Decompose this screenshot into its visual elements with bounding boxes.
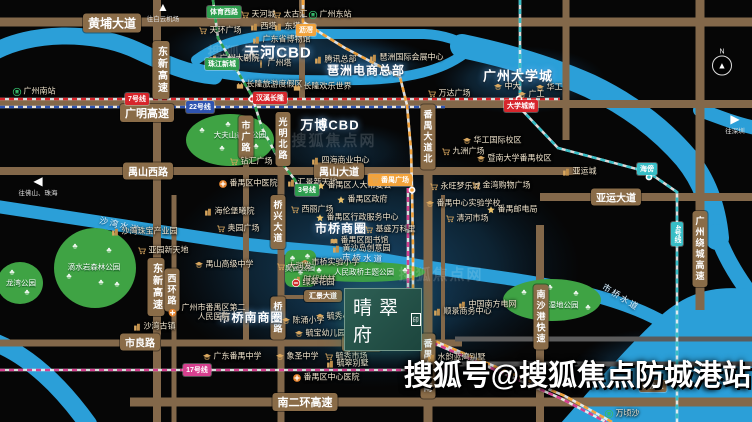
cart-icon <box>273 11 282 20</box>
tree-icon: ♣ <box>219 144 224 153</box>
arrow-label: 往白云机场 <box>147 13 180 23</box>
poi-cart: 太古汇 <box>273 11 308 20</box>
road-label: 禺山西路 <box>123 163 173 180</box>
poi-school: 象圣中学 <box>276 353 319 362</box>
poi-castle: 长隆欢乐世界 <box>293 83 352 92</box>
star-icon <box>337 196 346 205</box>
park-label: 龙湾公园 <box>6 278 36 289</box>
building-icon <box>250 23 259 32</box>
metro-station-tag: 3号线 <box>295 184 319 196</box>
tag-label: 22号线 <box>189 102 211 112</box>
compass-letter: N <box>719 49 724 56</box>
cart-icon <box>428 90 437 99</box>
road-label: 桥兴大道 <box>271 195 286 249</box>
tag-label: 3号线 <box>298 185 316 195</box>
poi-label: 绿翠花园 <box>303 279 335 288</box>
poi-cart: 金湾购物广场 <box>472 182 531 191</box>
school-icon <box>276 353 285 362</box>
poi-label: 万达广场 <box>439 90 471 99</box>
metro-station-tag: 22号线 <box>186 101 214 113</box>
location-map: ♣♣♣♣♣大夫山森林公园♣♣♣♣♣滴水岩森林公园♣♣龙湾公园♣♣♣奥园公园♣♣人… <box>0 0 752 422</box>
hospital-icon <box>293 374 302 383</box>
poi-label: 四海商业中心 <box>322 157 370 166</box>
poi-label: 广州南站 <box>24 88 56 97</box>
arrow-up-icon: ▲ <box>157 1 169 13</box>
castle-icon <box>293 83 302 92</box>
cart-icon <box>277 263 286 272</box>
watermark: 搜狐焦点网 <box>207 42 292 63</box>
poi-building: 亚运城 <box>562 168 597 177</box>
cart-icon <box>199 27 208 36</box>
building-icon <box>332 245 341 254</box>
poi-star: 番禺区政府 <box>337 196 388 205</box>
rail-icon <box>13 88 22 97</box>
poi-label: 广州市番禺区第二人民医院 <box>179 304 248 322</box>
metro-station-tag: 4号线 <box>671 222 683 246</box>
metro-station-tag: 17号线 <box>183 364 211 376</box>
tree-icon: ♣ <box>24 288 29 297</box>
arrow-label: 往佛山、珠海 <box>19 187 58 197</box>
building-icon <box>204 208 213 217</box>
poi-label: 西丽广场 <box>302 206 334 215</box>
school-icon <box>195 261 204 270</box>
river-label: 市桥水道 <box>600 281 642 313</box>
poi-cart: 钻汇广场 <box>230 158 273 167</box>
poi-label: 沙湾古镇 <box>144 323 176 332</box>
cart-icon <box>472 182 481 191</box>
building-icon <box>369 54 378 63</box>
watermark-sohu-big: 搜狐号@搜狐焦点防城港站 <box>404 352 751 394</box>
direction-arrow-left: ◀往佛山、珠海 <box>19 175 58 197</box>
poi-cart: 亚园新天地 <box>138 247 189 256</box>
direction-arrow-right: ▶往深圳 <box>725 113 745 135</box>
poi-school: 禺山高级中学 <box>195 261 254 270</box>
poi-label: 番禺区中医院 <box>230 180 278 189</box>
hospital-icon <box>219 180 228 189</box>
road-label: 汇景大道 <box>304 290 342 302</box>
tag-label: 7号线 <box>128 94 146 104</box>
road-label: 南沙港快速 <box>534 285 549 350</box>
tree-icon: ♣ <box>573 289 578 298</box>
school-icon <box>316 313 325 322</box>
road-label: 光明北路 <box>276 112 291 166</box>
tree-icon: ♣ <box>521 288 526 297</box>
poi-cart: 万达广场 <box>428 90 471 99</box>
poi-building: 黄沙岛创意园 <box>332 245 391 254</box>
road-label: 黄埔大道 <box>83 14 141 33</box>
poi-building: 沙湾珠宝产业园 <box>111 228 178 237</box>
poi-school: 暨南大学番禺校区 <box>477 155 552 164</box>
school-icon <box>536 84 545 93</box>
poi-school: 毓宝幼儿园 <box>295 330 346 339</box>
poi-label: 顺景商务中心 <box>444 308 492 317</box>
project-name: 晴翠府 <box>353 293 413 347</box>
poi-label: 番禺区政府 <box>348 196 388 205</box>
cart-icon <box>442 148 451 157</box>
school-icon <box>282 317 291 326</box>
poi-label: 华工国际校区 <box>474 137 522 146</box>
poi-label: 金湾购物广场 <box>483 182 531 191</box>
poi-building: 西塔 <box>250 23 277 32</box>
cart-icon <box>446 215 455 224</box>
cart-icon <box>291 206 300 215</box>
road-label: 广明高速 <box>120 104 174 122</box>
poi-label: 腾讯总部 <box>325 56 357 65</box>
building-icon <box>274 23 283 32</box>
poi-rail: 广州南站 <box>13 88 56 97</box>
compass-icon: N▲ <box>712 49 732 76</box>
tree-icon: ♣ <box>199 126 204 135</box>
road-label: 番禺大道北 <box>421 105 436 170</box>
project-seal-icon: 印 <box>411 313 421 326</box>
school-icon <box>203 353 212 362</box>
poi-label: 海伦堡曦院 <box>215 208 255 217</box>
road-label: 广州绕城高速 <box>693 211 708 287</box>
poi-label: 亚园新天地 <box>149 247 189 256</box>
poi-label: 毓翠别墅 <box>337 360 369 369</box>
poi-cart: 清河市场 <box>446 215 489 224</box>
building-icon <box>326 360 335 369</box>
poi-hospital: 番禺区中心医院 <box>293 374 360 383</box>
poi-cart: 奥园广场 <box>217 225 260 234</box>
cart-icon <box>138 247 147 256</box>
poi-label: 万顷沙 <box>616 410 640 419</box>
poi-cart: 天环广场 <box>199 27 242 36</box>
rail-icon <box>605 410 614 419</box>
poi-label: 琶洲国际会展中心 <box>380 54 444 63</box>
cart-icon <box>217 225 226 234</box>
metro-station-tag: 大学城南 <box>504 100 538 112</box>
poi-school: 华工 <box>536 84 563 93</box>
poi-building: 毓翠别墅 <box>326 360 369 369</box>
road-label: 南二环高速 <box>273 393 338 411</box>
poi-label: 市桥实验小学 <box>312 259 360 268</box>
poi-rail: 万顷沙 <box>605 410 640 419</box>
poi-building: 海伦堡曦院 <box>204 208 255 217</box>
metro-station-tag: 7号线 <box>125 93 149 105</box>
tree-icon: ♣ <box>106 246 111 255</box>
tree-icon: ♣ <box>72 242 77 251</box>
poi-hospital: 广州市番禺区第二人民医院 <box>168 304 248 322</box>
metro-station-tag: 体育西路 <box>207 6 241 18</box>
poi-cart: 九洲广场 <box>442 148 485 157</box>
school-icon <box>494 83 503 92</box>
watermark: 搜狐焦点网 <box>398 264 483 285</box>
poi-label: 沙湾珠宝产业园 <box>122 228 178 237</box>
poi-label: 番禺区行政服务中心 <box>327 214 399 223</box>
road-label: 市良路 <box>120 334 160 351</box>
poi-label: 黄沙岛创意园 <box>343 245 391 254</box>
tag-label: 17号线 <box>186 365 208 375</box>
poi-label: 象圣中学 <box>287 353 319 362</box>
park-label: 人民政桥主题公园 <box>334 267 394 278</box>
building-icon <box>311 157 320 166</box>
poi-building: 顺景商务中心 <box>433 308 492 317</box>
tree-icon: ♣ <box>253 142 258 151</box>
poi-label: 长隆欢乐世界 <box>304 83 352 92</box>
tag-label: 大学城南 <box>507 101 535 111</box>
building-icon <box>133 323 142 332</box>
metro-station-tag: 汉溪长隆 <box>253 92 287 104</box>
poi-label: 天环广场 <box>210 27 242 36</box>
metro-station-tag: 番禺广场 <box>368 174 412 186</box>
poi-label: 禺山高级中学 <box>206 261 254 270</box>
road-label: 市广路 <box>239 116 254 159</box>
cart-icon <box>365 226 374 235</box>
tree-icon: ♣ <box>98 278 103 287</box>
tag-label: 4号线 <box>672 225 682 243</box>
direction-arrow-up: ▲往白云机场 <box>147 1 180 23</box>
tag-label: 沥滘 <box>299 25 313 35</box>
project-logo: 晴翠府 印 <box>344 288 422 351</box>
park-label: 滴水岩森林公园 <box>68 262 121 273</box>
poi-label: 大润发 <box>288 263 312 272</box>
poi-school: 中大 <box>494 83 521 92</box>
poi-label: 暨南大学番禺校区 <box>488 155 552 164</box>
building-icon <box>562 168 571 177</box>
poi-hospital: 番禺区中医院 <box>219 180 278 189</box>
poi-station: 绿翠花园 <box>292 279 335 288</box>
watermark: 搜狐焦点网 <box>291 130 376 151</box>
poi-cart: 大润发 <box>277 263 312 272</box>
poi-label: 九洲广场 <box>453 148 485 157</box>
arrow-label: 往深圳 <box>725 125 745 135</box>
building-icon <box>433 308 442 317</box>
tree-icon: ♣ <box>114 280 119 289</box>
poi-label: 毓宝幼儿园 <box>306 330 346 339</box>
poi-label: 基盛万科里 <box>376 226 416 235</box>
cart-icon <box>241 11 250 20</box>
star-icon <box>316 214 325 223</box>
building-icon <box>111 228 120 237</box>
poi-label: 亚运城 <box>573 168 597 177</box>
poi-rail: 广州东站 <box>309 11 352 20</box>
poi-school: 华工国际校区 <box>463 137 522 146</box>
arrow-right-icon: ▶ <box>730 113 739 125</box>
poi-star: 番禺邮电局 <box>487 206 538 215</box>
poi-label: 太古汇 <box>284 11 308 20</box>
tree-icon: ♣ <box>66 272 71 281</box>
cart-icon <box>230 158 239 167</box>
rail-icon <box>309 11 318 20</box>
poi-label: 广州东站 <box>320 11 352 20</box>
poi-label: 华工 <box>547 84 563 93</box>
compass-needle: ▲ <box>712 56 732 76</box>
poi-cart: 基盛万科里 <box>365 226 416 235</box>
poi-building: 四海商业中心 <box>311 157 370 166</box>
poi-building: 琶洲国际会展中心 <box>369 54 444 63</box>
castle-icon <box>236 81 245 90</box>
cart-icon <box>371 176 379 184</box>
tag-label: 体育西路 <box>210 7 238 17</box>
arrow-left-icon: ◀ <box>33 175 42 187</box>
metro-station-tag: 沥滘 <box>296 24 316 36</box>
poi-building: 沙湾古镇 <box>133 323 176 332</box>
road-label: 亚运大道 <box>591 189 641 206</box>
poi-cart: 西丽广场 <box>291 206 334 215</box>
tag-label: 汉溪长隆 <box>256 93 284 103</box>
cart-icon <box>430 183 439 192</box>
tag-label: 海傍 <box>640 164 654 174</box>
poi-label: 番禺区中心医院 <box>304 374 360 383</box>
tag-label: 番禺广场 <box>381 175 409 185</box>
poi-cart: 天河城 <box>241 11 276 20</box>
tree-icon: ♣ <box>225 120 230 129</box>
poi-label: 钻汇广场 <box>241 158 273 167</box>
building-icon <box>314 56 323 65</box>
metro-station-tag: 海傍 <box>637 163 657 175</box>
station-icon <box>292 279 301 288</box>
poi-label: 广东番禺中学 <box>214 353 262 362</box>
poi-label: 番禺邮电局 <box>498 206 538 215</box>
tree-icon: ♣ <box>585 303 590 312</box>
poi-building: 腾讯总部 <box>314 56 357 65</box>
school-icon <box>295 330 304 339</box>
school-icon <box>518 91 527 100</box>
poi-label: 奥园广场 <box>228 225 260 234</box>
road-label: 东新高速 <box>148 258 165 316</box>
road-label: 东新高速 <box>153 41 170 99</box>
hospital-icon <box>168 309 177 318</box>
tree-icon: ♣ <box>9 268 14 277</box>
school-icon <box>463 137 472 146</box>
poi-star: 番禺区行政服务中心 <box>316 214 399 223</box>
poi-school: 广东番禺中学 <box>203 353 262 362</box>
school-icon <box>426 200 435 209</box>
poi-label: 清河市场 <box>457 215 489 224</box>
